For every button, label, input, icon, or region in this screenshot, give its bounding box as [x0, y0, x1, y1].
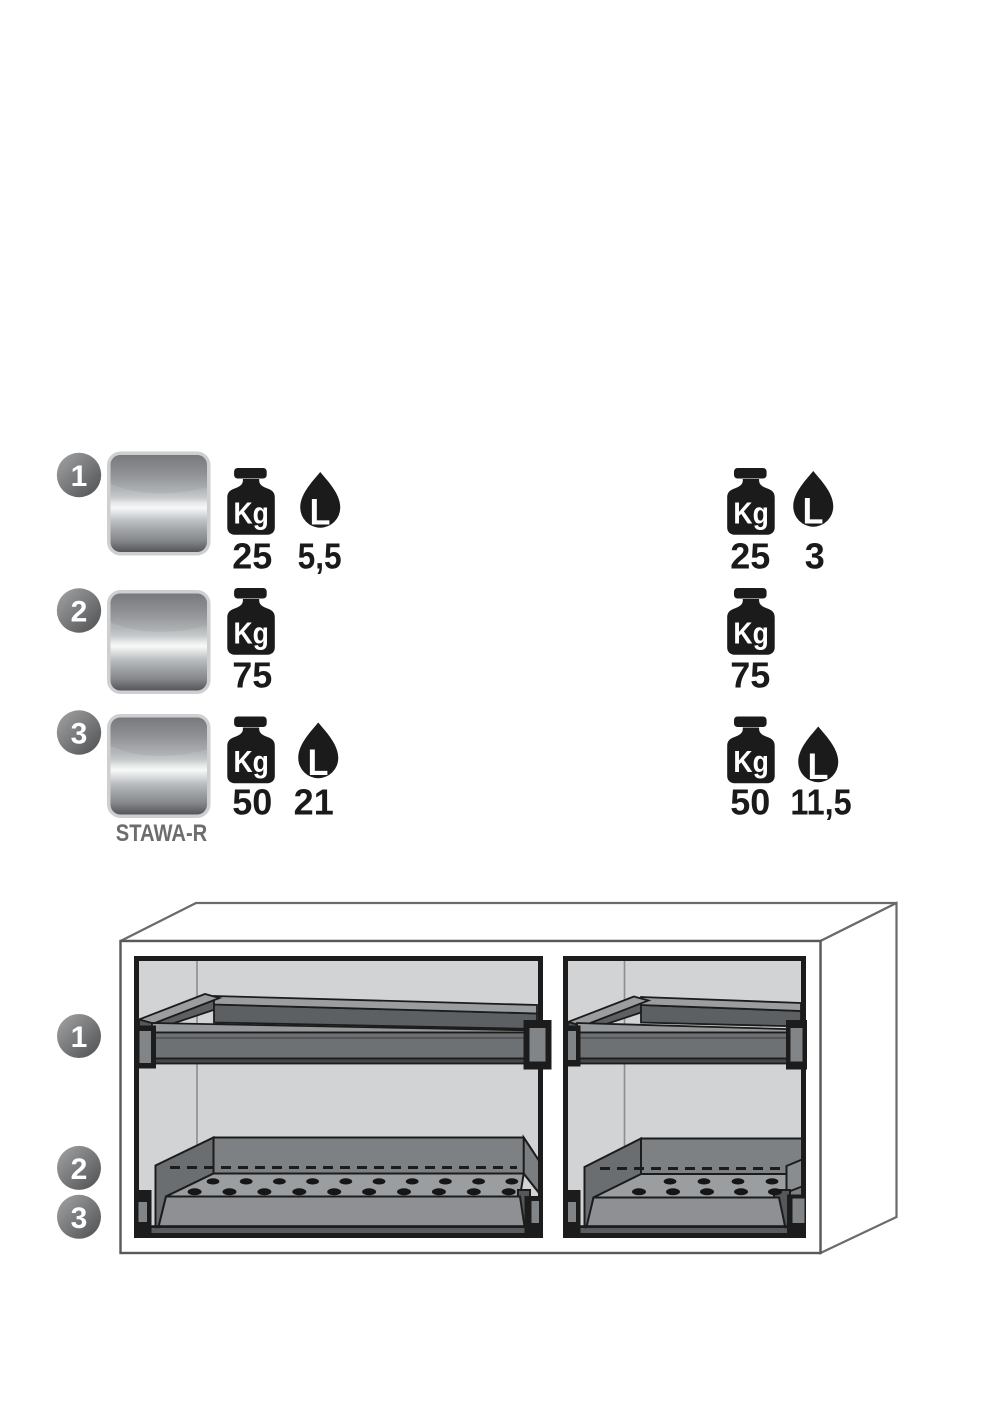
svg-text:3: 3	[71, 718, 88, 751]
svg-text:3: 3	[805, 536, 825, 577]
svg-text:1: 1	[71, 1021, 88, 1054]
svg-text:75: 75	[730, 655, 770, 696]
svg-text:50: 50	[730, 782, 770, 823]
svg-text:1: 1	[71, 460, 88, 493]
svg-text:2: 2	[71, 1153, 88, 1186]
svg-text:25: 25	[232, 536, 272, 577]
svg-text:25: 25	[730, 536, 770, 577]
svg-text:3: 3	[71, 1202, 88, 1235]
svg-text:STAWA-R: STAWA-R	[116, 819, 207, 846]
svg-text:75: 75	[232, 655, 272, 696]
svg-text:11,5: 11,5	[790, 783, 851, 823]
svg-text:21: 21	[294, 782, 334, 823]
svg-text:2: 2	[71, 596, 88, 629]
svg-text:50: 50	[232, 782, 272, 823]
svg-text:5,5: 5,5	[298, 537, 342, 577]
